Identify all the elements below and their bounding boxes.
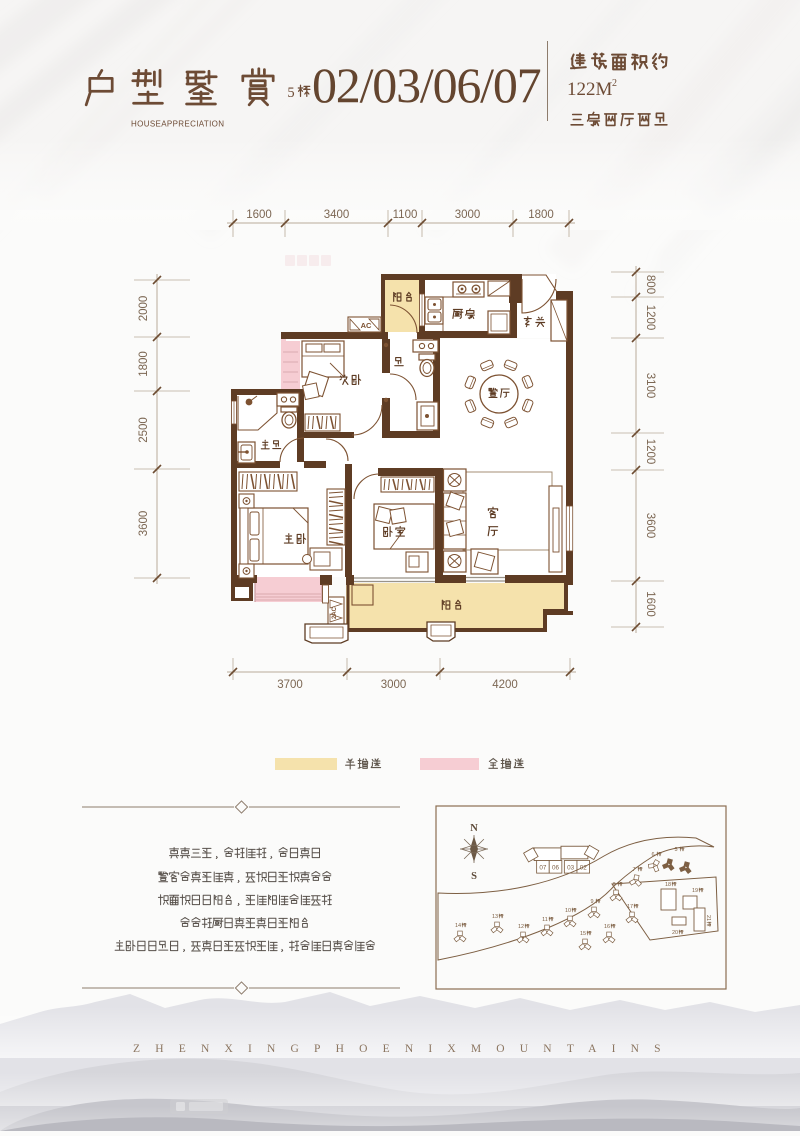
- svg-text:4200: 4200: [492, 679, 518, 691]
- svg-text:1800: 1800: [528, 209, 554, 221]
- svg-text:ZHENXINGPHOENIXMOUNTAINS: ZHENXINGPHOENIXMOUNTAINS: [133, 1043, 676, 1055]
- svg-text:13: 13: [492, 914, 498, 920]
- svg-text:1600: 1600: [644, 591, 656, 617]
- svg-text:AC: AC: [361, 321, 372, 330]
- svg-text:02/03/06/07: 02/03/06/07: [312, 57, 541, 113]
- svg-text:14: 14: [455, 923, 461, 929]
- svg-text:5: 5: [674, 847, 677, 853]
- svg-text:2AC: 2AC: [332, 606, 338, 619]
- svg-text:S: S: [471, 871, 477, 882]
- svg-text:5: 5: [287, 85, 294, 101]
- svg-text:122M: 122M: [567, 79, 613, 100]
- svg-text:21: 21: [705, 915, 711, 921]
- svg-text:1200: 1200: [644, 305, 656, 331]
- svg-text:800: 800: [644, 275, 656, 294]
- svg-text:3000: 3000: [455, 209, 481, 221]
- svg-text:1600: 1600: [246, 209, 272, 221]
- svg-text:1200: 1200: [644, 439, 656, 465]
- svg-text:10: 10: [565, 908, 571, 914]
- svg-text:3600: 3600: [138, 511, 150, 537]
- svg-text:1800: 1800: [138, 351, 150, 377]
- svg-text:HOUSEAPPRECIATION: HOUSEAPPRECIATION: [131, 120, 224, 129]
- svg-text:3600: 3600: [644, 513, 656, 539]
- svg-text:20: 20: [672, 930, 678, 936]
- svg-text:9: 9: [590, 899, 593, 905]
- svg-text:3000: 3000: [381, 679, 407, 691]
- svg-text:2000: 2000: [138, 296, 150, 322]
- svg-text:N: N: [470, 823, 478, 834]
- svg-text:3400: 3400: [324, 209, 350, 221]
- svg-text:3700: 3700: [277, 679, 303, 691]
- svg-text:12: 12: [518, 924, 524, 930]
- svg-text:2500: 2500: [138, 417, 150, 443]
- svg-text:06: 06: [552, 864, 560, 871]
- svg-text:19: 19: [692, 888, 698, 894]
- svg-text:1100: 1100: [393, 209, 418, 221]
- svg-text:03: 03: [567, 864, 575, 871]
- svg-text:2: 2: [612, 78, 617, 89]
- svg-text:7: 7: [632, 867, 635, 873]
- svg-text:3100: 3100: [644, 373, 656, 399]
- svg-text:6: 6: [651, 852, 654, 858]
- svg-text:11: 11: [542, 917, 548, 923]
- svg-text:18: 18: [665, 882, 671, 888]
- svg-text:17: 17: [627, 904, 633, 910]
- svg-text:07: 07: [539, 864, 547, 871]
- svg-text:8: 8: [612, 882, 615, 888]
- svg-text:15: 15: [580, 931, 586, 937]
- svg-text:16: 16: [604, 924, 610, 930]
